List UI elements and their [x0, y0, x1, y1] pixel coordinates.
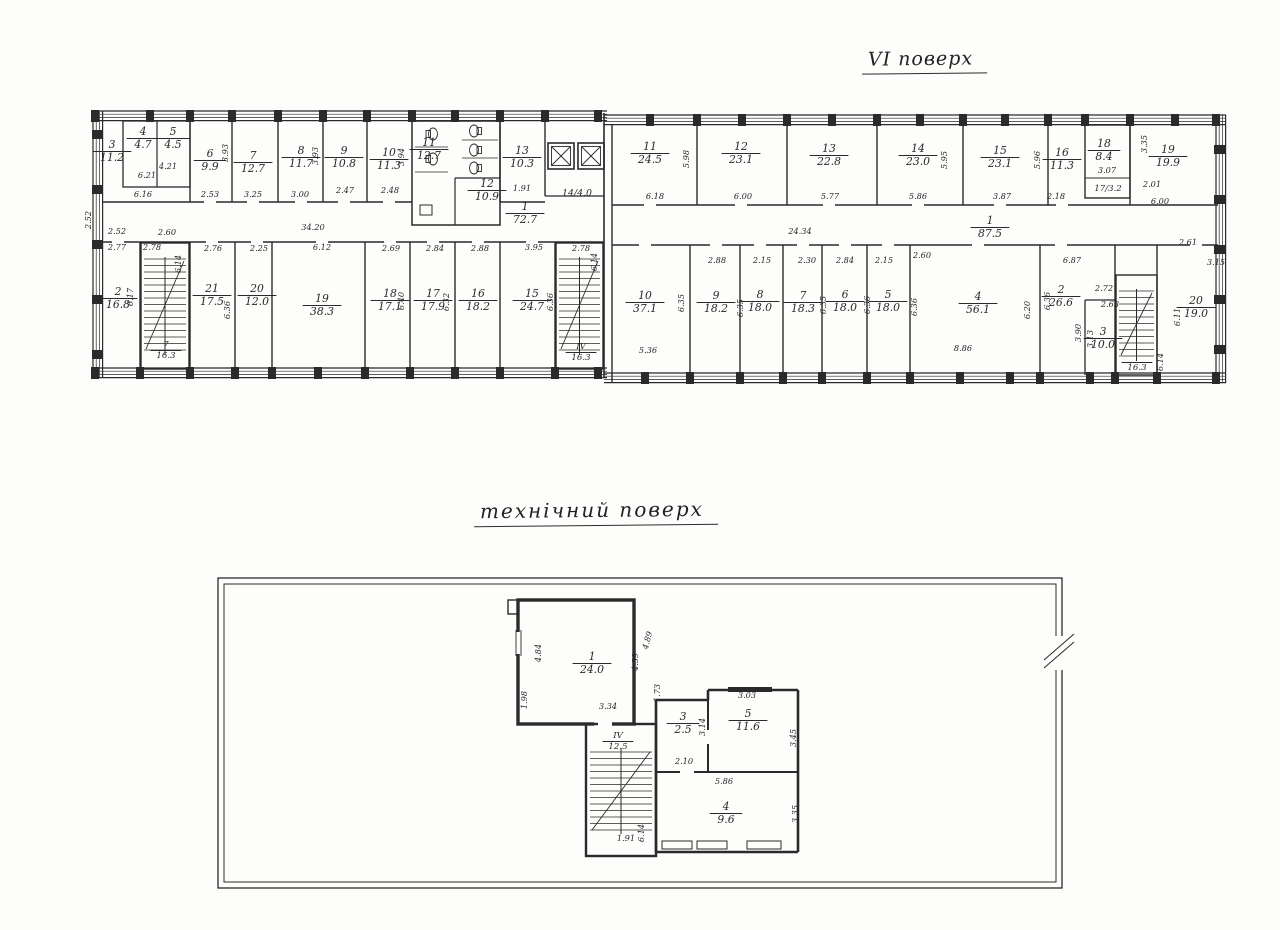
dim-label: 3.35 — [790, 805, 800, 823]
pilaster — [451, 110, 459, 122]
dim-label: 4.84 — [533, 644, 543, 663]
door-gap — [994, 203, 1006, 207]
room-label: 14 — [911, 142, 925, 155]
room-label: 17 — [426, 287, 440, 300]
room-label: 20 — [1188, 294, 1203, 307]
room-label: 19 — [315, 292, 329, 305]
dim-label: 5.95 — [939, 151, 949, 169]
dim-label: 5.96 — [1032, 151, 1042, 169]
dim-label: 5.86 — [909, 191, 927, 201]
room-label: 5 — [745, 707, 752, 720]
room-label: 10.3 — [510, 157, 534, 170]
dim-label: 34.20 — [301, 222, 324, 232]
dim-label: 6.87 — [1063, 255, 1082, 265]
dim-label: 6.14 — [636, 824, 646, 842]
dim-label: 6.00 — [1151, 196, 1169, 206]
corridor-label: 87.5 — [978, 227, 1002, 240]
pilaster — [1214, 295, 1225, 304]
pilaster — [274, 110, 282, 122]
room-label: 6 — [207, 147, 214, 160]
dim-label: 6.14 — [1155, 353, 1165, 371]
dim-label: 6.12 — [313, 242, 331, 252]
room-label: 16 — [1055, 146, 1069, 159]
room-label: 9 — [713, 289, 720, 302]
dim-label: 3.94 — [396, 148, 406, 166]
room-label: 18 — [383, 287, 397, 300]
dim-label: 4.21 — [158, 161, 177, 171]
door-gap — [680, 770, 694, 774]
room-label: 19.9 — [1156, 156, 1180, 169]
dim-label: 2.10 — [674, 756, 693, 766]
door-gap — [639, 243, 651, 247]
room-label: 16 — [471, 287, 485, 300]
dim-label: 2.61 — [1178, 237, 1197, 247]
dim-label: 1.73 — [652, 684, 662, 702]
door-gap — [1056, 203, 1068, 207]
room-label: 9 — [341, 144, 348, 157]
pilaster — [1081, 114, 1089, 126]
room-label: 8 — [298, 144, 305, 157]
room-label: 3 — [109, 138, 116, 151]
pilaster — [92, 295, 103, 304]
pilaster — [1214, 195, 1225, 204]
dim-label: 6.35 — [735, 299, 745, 317]
room-label: 10 — [638, 289, 652, 302]
pilaster — [738, 114, 746, 126]
door-gap — [797, 243, 809, 247]
room-label: 15 — [525, 287, 539, 300]
pilaster — [1086, 372, 1094, 384]
dim-label: 6.17 — [125, 287, 135, 306]
vent — [662, 841, 692, 849]
dim-label: 6.36 — [545, 293, 555, 311]
dim-label: 2.77 — [107, 242, 127, 252]
room-label: 13 — [515, 144, 529, 157]
room-label: 4.5 — [163, 138, 181, 151]
dim-label: 3.15 — [1207, 257, 1225, 267]
room-label: 16.3 — [1127, 363, 1147, 373]
room-label: 9.6 — [717, 813, 734, 826]
dim-label: 6.35 — [818, 296, 828, 314]
room-label: ІV — [612, 731, 623, 741]
room-label: 12.0 — [245, 295, 269, 308]
dim-label: 2.47 — [335, 185, 355, 195]
scanned-floorplan-page: VI поверх технічний поверх 311.244.754.5… — [0, 0, 1280, 930]
room-label: 18.2 — [704, 302, 728, 315]
dim-label: 2.60 — [912, 250, 931, 260]
dim-label: 5.86 — [715, 776, 733, 786]
dim-label: 2.78 — [142, 242, 161, 252]
room-label: 24.7 — [519, 300, 544, 313]
door-gap — [972, 243, 984, 247]
dim-label: 6.20 — [1022, 301, 1032, 319]
pilaster — [646, 114, 654, 126]
pilaster — [92, 185, 103, 194]
room-label: 19 — [1161, 143, 1175, 156]
pilaster — [1006, 372, 1014, 384]
room-label: 4 — [722, 800, 730, 813]
room-label: 16.3 — [571, 353, 591, 363]
room-label: 20 — [249, 282, 264, 295]
room-label: 56.1 — [966, 303, 990, 316]
dim-label: 4.39 — [630, 653, 640, 672]
door-gap — [338, 200, 350, 204]
room-label: 18.3 — [791, 302, 815, 315]
dim-label: 2.01 — [1142, 179, 1161, 189]
room-label: 13 — [822, 142, 836, 155]
room-label: 37.1 — [633, 302, 657, 315]
dim-label: 6.14 — [589, 253, 599, 271]
pilaster — [1214, 245, 1225, 254]
door-gap — [644, 203, 656, 207]
dim-label: 2.48 — [380, 185, 399, 195]
corridor-label: 1 — [522, 200, 529, 213]
corridor-label: 1 — [987, 214, 994, 227]
room-label: 12.7 — [417, 149, 441, 162]
door-gap — [247, 200, 259, 204]
room-label: 16.3 — [156, 351, 176, 361]
room-label: 8 — [757, 288, 764, 301]
pilaster — [496, 110, 504, 122]
pilaster — [1044, 114, 1052, 126]
pilaster — [693, 114, 701, 126]
room-label: 1 — [589, 650, 596, 663]
room-label: 12 — [734, 140, 748, 153]
dim-label: 6.35 — [676, 294, 686, 312]
pilaster — [594, 110, 602, 122]
dim-label: 6.32 — [441, 293, 451, 311]
pilaster — [1214, 345, 1225, 354]
pilaster — [1001, 114, 1009, 126]
vent — [697, 841, 727, 849]
dim-label: 6.18 — [646, 191, 664, 201]
door-gap — [598, 722, 612, 727]
dim-label: 24.34 — [787, 226, 811, 236]
pilaster — [828, 114, 836, 126]
dim-label: 3.34 — [599, 701, 617, 711]
door-gap — [383, 200, 395, 204]
dim-label: 6.36 — [909, 298, 919, 316]
door-gap — [882, 243, 894, 247]
dim-label: 2.84 — [835, 255, 854, 265]
pilaster — [1212, 114, 1220, 126]
dim-label: 6.36 — [222, 301, 232, 319]
room-label: 10 — [382, 146, 396, 159]
dim-label: 2.69 — [381, 243, 400, 253]
dim-label: 3.87 — [993, 191, 1012, 201]
dim-label: 2.15 — [752, 255, 771, 265]
dim-label: 4.89 — [640, 630, 655, 651]
dim-label: 6.36 — [862, 296, 872, 314]
room-label: 11.2 — [100, 151, 124, 164]
dim-label: 3.93 — [220, 144, 230, 162]
pilaster — [641, 372, 649, 384]
dim-label: 6.40 — [396, 292, 406, 310]
dim-label: 1.91 — [513, 183, 531, 193]
dim-label: 2.84 — [425, 243, 444, 253]
tech-floor-title: технічний поверх — [474, 497, 718, 528]
dim-label: 6.14 — [173, 255, 183, 273]
dim-label: 6.36 — [1042, 292, 1052, 310]
room-label: 2 — [114, 285, 122, 298]
room-label: 22.8 — [816, 155, 841, 168]
room-label: ІV — [575, 342, 586, 352]
room-label: 11.3 — [1050, 159, 1074, 172]
door-gap — [839, 243, 851, 247]
room-label: 11 — [643, 140, 657, 153]
room-17-label: 17/3.2 — [1094, 184, 1122, 194]
vent — [747, 841, 781, 849]
pilaster — [92, 350, 103, 359]
room-label: 4 — [139, 125, 147, 138]
wc-sink — [420, 205, 432, 215]
room-label: 19.0 — [1184, 307, 1208, 320]
dim-label: 3.35 — [1139, 135, 1149, 153]
room-label: 3 — [1100, 325, 1107, 338]
pilaster — [1126, 114, 1134, 126]
pilaster — [363, 110, 371, 122]
room-label: 11 — [422, 136, 436, 149]
room-label: 23.0 — [905, 155, 930, 168]
dim-label: 5.36 — [639, 345, 657, 355]
dim-label: 5.98 — [681, 150, 691, 168]
room-label: 23.1 — [987, 157, 1012, 170]
dim-label: 2.88 — [707, 255, 726, 265]
room-label: 18.2 — [466, 300, 490, 313]
room-label: 5 — [885, 288, 892, 301]
room-label: 9.9 — [201, 160, 218, 173]
room-label: 7 — [163, 340, 169, 350]
dim-label: 2.52 — [83, 211, 93, 230]
room-label: 18 — [1097, 137, 1111, 150]
dim-label: 2.30 — [797, 255, 816, 265]
dim-label: 2.88 — [470, 243, 489, 253]
pilaster — [314, 367, 322, 379]
room-label: 18.0 — [876, 301, 900, 314]
room-label: 10.8 — [332, 157, 356, 170]
dim-label: 3.45 — [788, 729, 798, 747]
pilaster — [783, 114, 791, 126]
room-label: 4.7 — [133, 138, 151, 151]
pilaster — [956, 372, 964, 384]
room-label: 11.6 — [736, 720, 760, 733]
elevator-label: 14/4.0 — [562, 188, 592, 199]
door-gap — [912, 203, 924, 207]
room-label: 6 — [842, 288, 849, 301]
room-label: 38.3 — [310, 305, 334, 318]
dim-label: 2.76 — [203, 243, 222, 253]
room-label: 2 — [1057, 283, 1065, 296]
door-gap — [754, 243, 766, 247]
dim-label: 3.93 — [310, 147, 320, 165]
door-gap — [295, 200, 307, 204]
dim-label: 6.11 — [1172, 308, 1182, 326]
pilaster — [91, 110, 99, 122]
pilaster — [873, 114, 881, 126]
room-label: 12.5 — [608, 742, 627, 752]
dim-label: 2.63 — [1100, 299, 1119, 309]
floor6-title: VI поверх — [862, 47, 987, 74]
room-label: 24.0 — [579, 663, 604, 676]
room-label: 18.0 — [833, 301, 857, 314]
room-label: 7 — [800, 289, 807, 302]
room-label: 2.5 — [673, 723, 691, 736]
pilaster — [319, 110, 327, 122]
pilaster — [916, 114, 924, 126]
room-label: 18.0 — [748, 301, 772, 314]
dim-label: 2.60 — [157, 227, 176, 237]
dim-label: 2.72 — [1094, 283, 1113, 293]
dim-label: 3.14 — [697, 718, 707, 736]
pilaster — [408, 110, 416, 122]
dim-label: 3.95 — [525, 242, 543, 252]
door-gap — [735, 203, 747, 207]
room-label: 7 — [250, 149, 257, 162]
room-label: 15 — [993, 144, 1007, 157]
dim-label: 3.03 — [738, 690, 756, 700]
pilaster — [228, 110, 236, 122]
dim-label: 3.07 — [1098, 165, 1117, 175]
dim-label: 6.21 — [138, 170, 156, 180]
pilaster — [1214, 145, 1225, 154]
door-gap — [710, 243, 722, 247]
pilaster — [186, 110, 194, 122]
room-label: 5 — [170, 125, 177, 138]
pilaster — [146, 110, 154, 122]
dim-label: 8.86 — [954, 343, 972, 353]
corridor-label: 72.7 — [513, 213, 537, 226]
dim-label: 2.18 — [1046, 191, 1065, 201]
dim-label: 2.25 — [249, 243, 268, 253]
dim-label: 3.90 — [1073, 324, 1083, 342]
door-gap — [823, 203, 835, 207]
dim-label: 2.15 — [874, 255, 893, 265]
dim-label: 2.78 — [571, 243, 590, 253]
dim-label: 2.53 — [200, 189, 219, 199]
room-label: 10.9 — [475, 190, 499, 203]
room-label: 21 — [204, 282, 219, 295]
dim-label: 6.16 — [134, 189, 152, 199]
room-label: 17.5 — [200, 295, 224, 308]
dim-label: 6.00 — [734, 191, 752, 201]
room-label: 12.7 — [241, 162, 265, 175]
room-label: 12 — [480, 177, 494, 190]
room-label: 24.5 — [637, 153, 662, 166]
dim-label: 3.00 — [291, 189, 309, 199]
dim-label: 1.91 — [617, 833, 635, 843]
room-label: 4 — [974, 290, 982, 303]
door-gap — [204, 200, 216, 204]
pilaster — [1212, 372, 1220, 384]
dim-label: 5.77 — [821, 191, 840, 201]
dim-label: 3.13 — [1085, 330, 1095, 348]
pilaster — [1171, 114, 1179, 126]
dim-label: 1.98 — [519, 691, 529, 709]
pilaster — [92, 240, 103, 249]
pilaster — [91, 367, 99, 379]
pilaster — [541, 110, 549, 122]
pilaster — [959, 114, 967, 126]
room-label: 23.1 — [728, 153, 753, 166]
dim-label: 2.52 — [107, 226, 126, 236]
dim-label: 3.25 — [244, 189, 262, 199]
pilaster — [92, 130, 103, 139]
room-label: 3 — [680, 710, 687, 723]
room-label: 8.4 — [1095, 150, 1112, 163]
door-gap — [1055, 243, 1067, 247]
floorplan-svg: 311.244.754.569.9712.7811.7910.81011.311… — [0, 0, 1280, 930]
